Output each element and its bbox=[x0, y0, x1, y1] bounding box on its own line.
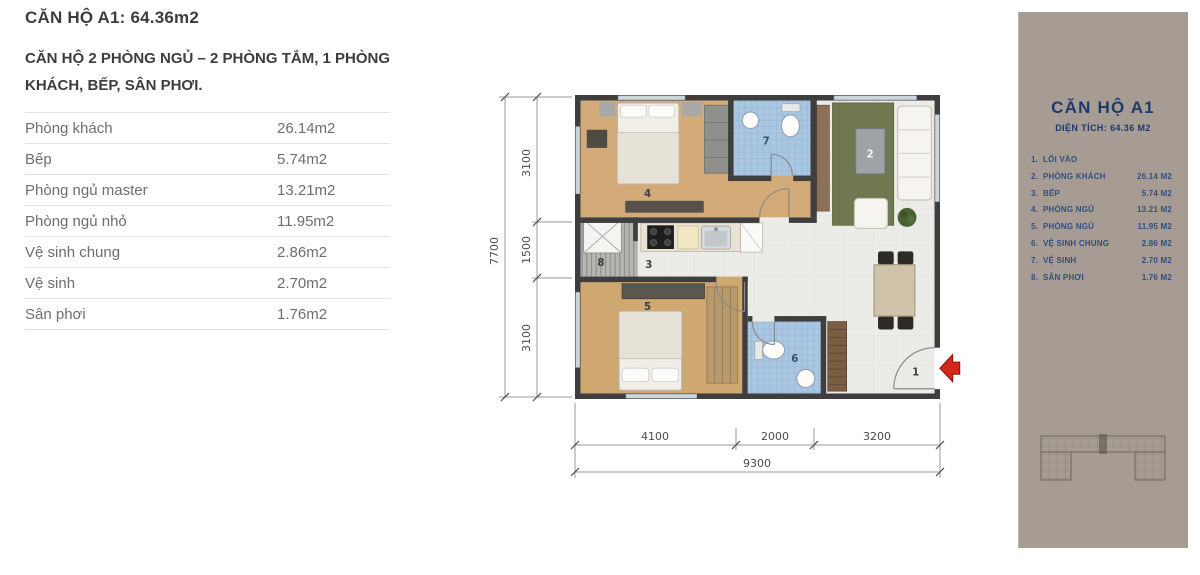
legend-label: LỐI VÀO bbox=[1043, 155, 1172, 164]
key-plan-marker bbox=[1099, 434, 1107, 454]
blanket bbox=[617, 133, 679, 184]
page-subtitle: CĂN HỘ 2 PHÒNG NGỦ – 2 PHÒNG TẮM, 1 PHÒN… bbox=[25, 45, 397, 99]
legend-label: VỆ SINH CHUNG bbox=[1043, 239, 1142, 248]
desk bbox=[622, 284, 704, 299]
side-panel: CĂN HỘ A1 DIỆN TÍCH: 64.36 M2 1. LỐI VÀO… bbox=[1018, 12, 1188, 548]
plant bbox=[898, 208, 917, 227]
armchair bbox=[854, 198, 887, 228]
panel-legend: 1. LỐI VÀO 2. PHÒNG KHÁCH 26.14 M2 3. BẾ… bbox=[1031, 155, 1172, 289]
dim-bottom-seg2: 2000 bbox=[761, 430, 789, 443]
pillow bbox=[621, 105, 647, 117]
table-row: Phòng khách 26.14m2 bbox=[25, 113, 390, 144]
hall-cabinet bbox=[828, 322, 847, 391]
dim-bottom-total: 9300 bbox=[743, 457, 771, 470]
room-number-8: 8 bbox=[597, 258, 604, 269]
entrance-arrow-icon bbox=[940, 355, 960, 382]
dining-chair bbox=[898, 251, 914, 264]
toilet-tank bbox=[782, 104, 800, 112]
room-name: Phòng ngủ nhỏ bbox=[25, 213, 277, 230]
cutting-board bbox=[678, 226, 698, 249]
legend-number: 4. bbox=[1031, 205, 1043, 214]
room-name: Sân phơi bbox=[25, 306, 277, 323]
toilet bbox=[763, 341, 785, 359]
dim-bottom-seg3: 3200 bbox=[863, 430, 891, 443]
legend-number: 2. bbox=[1031, 172, 1043, 181]
room-number-5: 5 bbox=[644, 302, 651, 313]
wardrobe bbox=[705, 105, 729, 173]
table-row: Sân phơi 1.76m2 bbox=[25, 299, 390, 330]
room-area: 2.70m2 bbox=[277, 275, 390, 292]
legend-number: 7. bbox=[1031, 256, 1043, 265]
table-row: Bếp 5.74m2 bbox=[25, 144, 390, 175]
legend-row: 8. SÂN PHƠI 1.76 M2 bbox=[1031, 273, 1172, 290]
building-key-plan bbox=[1033, 430, 1173, 490]
room-number-1: 1 bbox=[912, 367, 919, 378]
legend-value: 11.95 M2 bbox=[1137, 222, 1172, 231]
toilet bbox=[781, 115, 799, 137]
dim-left-seg3: 3100 bbox=[520, 324, 533, 352]
page-title: CĂN HỘ A1: 64.36m2 bbox=[25, 8, 407, 28]
dim-left-seg1: 3100 bbox=[520, 149, 533, 177]
room-name: Vệ sinh chung bbox=[25, 244, 277, 261]
blanket bbox=[619, 311, 682, 358]
room-number-2: 2 bbox=[867, 149, 874, 160]
legend-row: 3. BẾP 5.74 M2 bbox=[1031, 189, 1172, 206]
room-area: 26.14m2 bbox=[277, 120, 390, 137]
room-number-6: 6 bbox=[791, 354, 798, 365]
legend-number: 8. bbox=[1031, 273, 1043, 282]
sink bbox=[742, 112, 758, 129]
stove bbox=[647, 225, 674, 249]
nightstand bbox=[599, 102, 615, 116]
legend-value: 13.21 M2 bbox=[1137, 205, 1172, 214]
legend-label: PHÒNG NGỦ bbox=[1043, 222, 1137, 231]
room-number-7: 7 bbox=[763, 137, 770, 148]
dining-chair bbox=[878, 251, 894, 264]
dim-left-total: 7700 bbox=[488, 237, 501, 265]
legend-number: 1. bbox=[1031, 155, 1043, 164]
floor-plan-svg: 7700 3100 1500 3100 4100 2000 3200 9300 bbox=[488, 88, 980, 488]
legend-number: 6. bbox=[1031, 239, 1043, 248]
legend-value: 2.70 M2 bbox=[1142, 256, 1172, 265]
legend-row: 7. VỆ SINH 2.70 M2 bbox=[1031, 256, 1172, 273]
pillow bbox=[649, 105, 675, 117]
table-row: Vệ sinh chung 2.86m2 bbox=[25, 237, 390, 268]
left-column: CĂN HỘ A1: 64.36m2 CĂN HỘ 2 PHÒNG NGỦ – … bbox=[25, 8, 407, 330]
pillow bbox=[652, 368, 679, 381]
table-row: Phòng ngủ nhỏ 11.95m2 bbox=[25, 206, 390, 237]
room-name: Phòng ngủ master bbox=[25, 182, 277, 199]
dining-chair bbox=[898, 316, 914, 329]
legend-value: 5.74 M2 bbox=[1142, 189, 1172, 198]
area-table: Phòng khách 26.14m2 Bếp 5.74m2 Phòng ngủ… bbox=[25, 112, 390, 330]
legend-row: 2. PHÒNG KHÁCH 26.14 M2 bbox=[1031, 172, 1172, 189]
room-name: Bếp bbox=[25, 151, 277, 168]
floor-plan: 1 2 3 4 5 6 7 8 bbox=[575, 95, 960, 399]
room-name: Vệ sinh bbox=[25, 275, 277, 292]
legend-number: 3. bbox=[1031, 189, 1043, 198]
legend-row: 4. PHÒNG NGỦ 13.21 M2 bbox=[1031, 205, 1172, 222]
legend-value: 2.86 M2 bbox=[1142, 239, 1172, 248]
legend-value: 1.76 M2 bbox=[1142, 273, 1172, 282]
table-row: Phòng ngủ master 13.21m2 bbox=[25, 175, 390, 206]
dining-chair bbox=[878, 316, 894, 329]
room-area: 5.74m2 bbox=[277, 151, 390, 168]
legend-label: VỆ SINH bbox=[1043, 256, 1142, 265]
dim-left-seg2: 1500 bbox=[520, 236, 533, 264]
room-area: 13.21m2 bbox=[277, 182, 390, 199]
legend-label: PHÒNG KHÁCH bbox=[1043, 172, 1137, 181]
pillow bbox=[622, 368, 649, 381]
nightstand bbox=[682, 102, 702, 116]
legend-label: PHÒNG NGỦ bbox=[1043, 205, 1137, 214]
toilet-tank bbox=[755, 341, 763, 359]
legend-row: 5. PHÒNG NGỦ 11.95 M2 bbox=[1031, 222, 1172, 239]
legend-row: 6. VỆ SINH CHUNG 2.86 M2 bbox=[1031, 239, 1172, 256]
panel-title: CĂN HỘ A1 bbox=[1018, 98, 1188, 118]
legend-label: SÂN PHƠI bbox=[1043, 273, 1142, 282]
sink bbox=[797, 369, 815, 387]
room-number-4: 4 bbox=[644, 189, 651, 200]
table-row: Vệ sinh 2.70m2 bbox=[25, 268, 390, 299]
room-area: 2.86m2 bbox=[277, 244, 390, 261]
faucet bbox=[714, 227, 718, 231]
legend-number: 5. bbox=[1031, 222, 1043, 231]
dim-bottom-seg1: 4100 bbox=[641, 430, 669, 443]
room-name: Phòng khách bbox=[25, 120, 277, 137]
tv-cabinet bbox=[817, 105, 830, 211]
panel-subtitle: DIỆN TÍCH: 64.36 M2 bbox=[1018, 123, 1188, 133]
room-number-3: 3 bbox=[645, 260, 652, 271]
legend-row: 1. LỐI VÀO bbox=[1031, 155, 1172, 172]
room-area: 11.95m2 bbox=[277, 213, 390, 230]
legend-label: BẾP bbox=[1043, 189, 1142, 198]
legend-value: 26.14 M2 bbox=[1137, 172, 1172, 181]
room-area: 1.76m2 bbox=[277, 306, 390, 323]
apartment-a1-page: CĂN HỘ A1: 64.36m2 CĂN HỘ 2 PHÒNG NGỦ – … bbox=[0, 0, 1200, 575]
dining-table bbox=[874, 265, 915, 316]
closet-block bbox=[587, 130, 607, 148]
floor-plan-figure: 7700 3100 1500 3100 4100 2000 3200 9300 bbox=[488, 88, 980, 488]
dresser bbox=[625, 201, 704, 213]
